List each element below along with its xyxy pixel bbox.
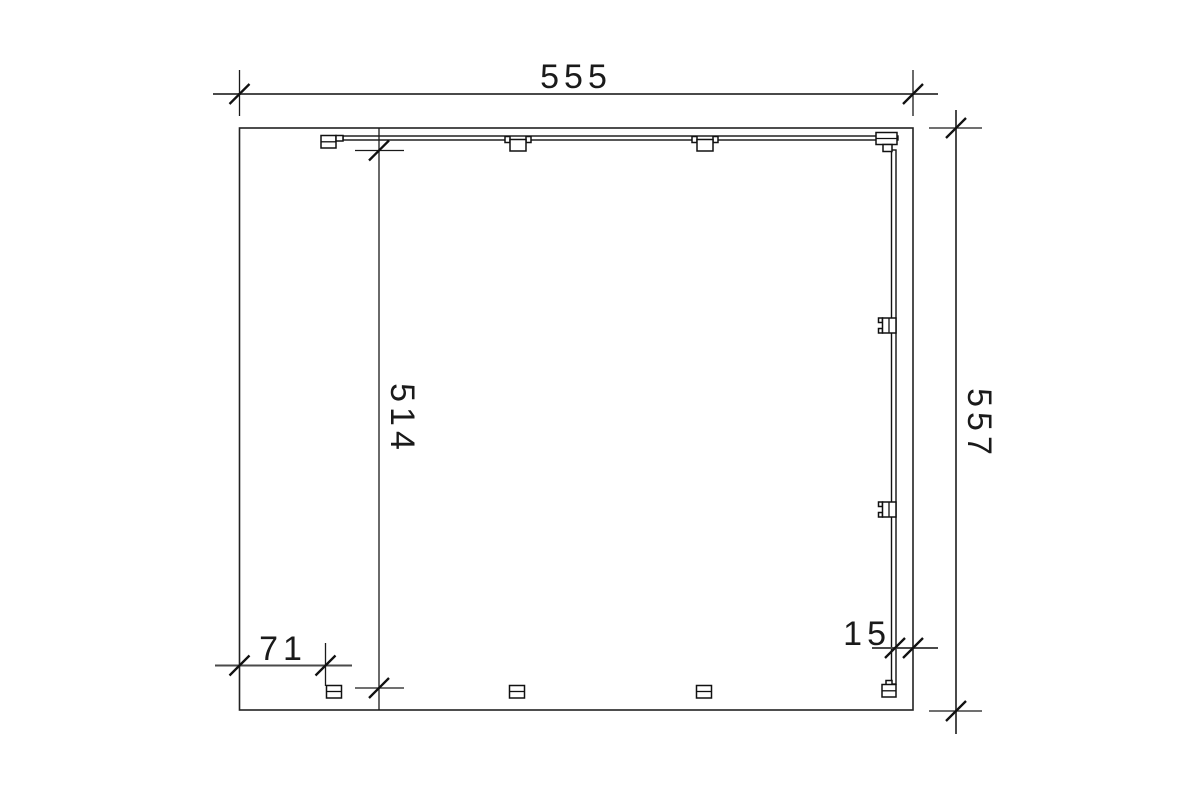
right-beam [892,150,897,684]
dim-label-overall-width: 555 [540,58,612,96]
dim-label-right-offset: 15 [843,615,891,653]
technical-drawing-page: 555 557 514 71 [0,0,1200,800]
dimension-overall-width: 555 [213,58,938,116]
dim-label-left-offset: 71 [259,630,307,668]
plan-drawing-canvas: 555 557 514 71 [0,0,1200,800]
post-bottom-2 [510,686,525,699]
structure-outline [240,128,914,710]
dimension-inner-height: 514 [355,128,421,710]
post-top-left [321,136,343,149]
post-right-1 [879,318,897,333]
dim-label-overall-height: 557 [960,388,998,460]
dimension-left-offset: 71 [215,630,352,686]
post-top-right-corner [876,133,897,152]
dimension-right-offset: 15 [843,615,938,658]
post-right-2 [879,502,897,517]
dimension-overall-height: 557 [929,110,998,734]
roof-beams [343,136,898,684]
post-bottom-1 [327,686,342,699]
post-bottom-3 [697,686,712,699]
dim-label-inner-height: 514 [383,383,421,455]
top-beam [343,136,898,140]
